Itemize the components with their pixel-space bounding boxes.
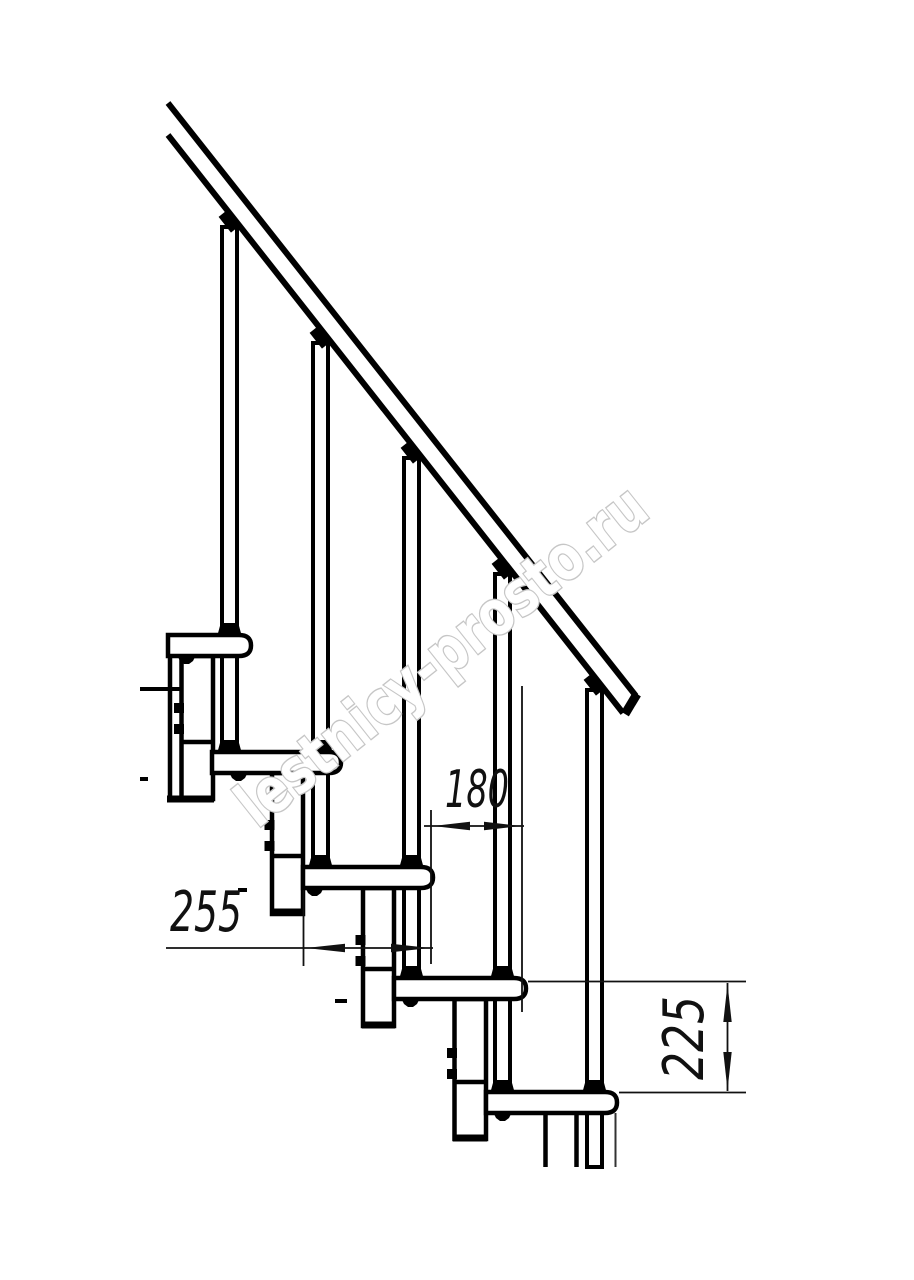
- dimension-step-rise: 225: [528, 982, 746, 1093]
- arrow-up-icon: [723, 984, 731, 1022]
- arrow-left-icon: [306, 944, 345, 952]
- support-column-4: [453, 999, 487, 1139]
- tread-4: [394, 978, 526, 999]
- support-column-5: [546, 1113, 616, 1167]
- tread-3: [303, 867, 433, 888]
- staircase-technical-drawing: lestnicy-prosto.ru 255 180 225: [0, 0, 914, 1280]
- handrail-end-cap: [625, 694, 637, 714]
- tread-5: [486, 1092, 617, 1113]
- staircase-drawing-page: lestnicy-prosto.ru 255 180 225: [0, 0, 914, 1280]
- baluster-1: [222, 227, 237, 742]
- support-column-3: [362, 888, 395, 1026]
- arrow-down-icon: [723, 1052, 731, 1090]
- dimension-label-225: 225: [652, 996, 717, 1080]
- arrow-left-icon: [433, 822, 470, 830]
- tread-1: [168, 635, 251, 656]
- dimension-label-180: 180: [445, 760, 509, 820]
- dimension-label-255: 255: [170, 880, 242, 945]
